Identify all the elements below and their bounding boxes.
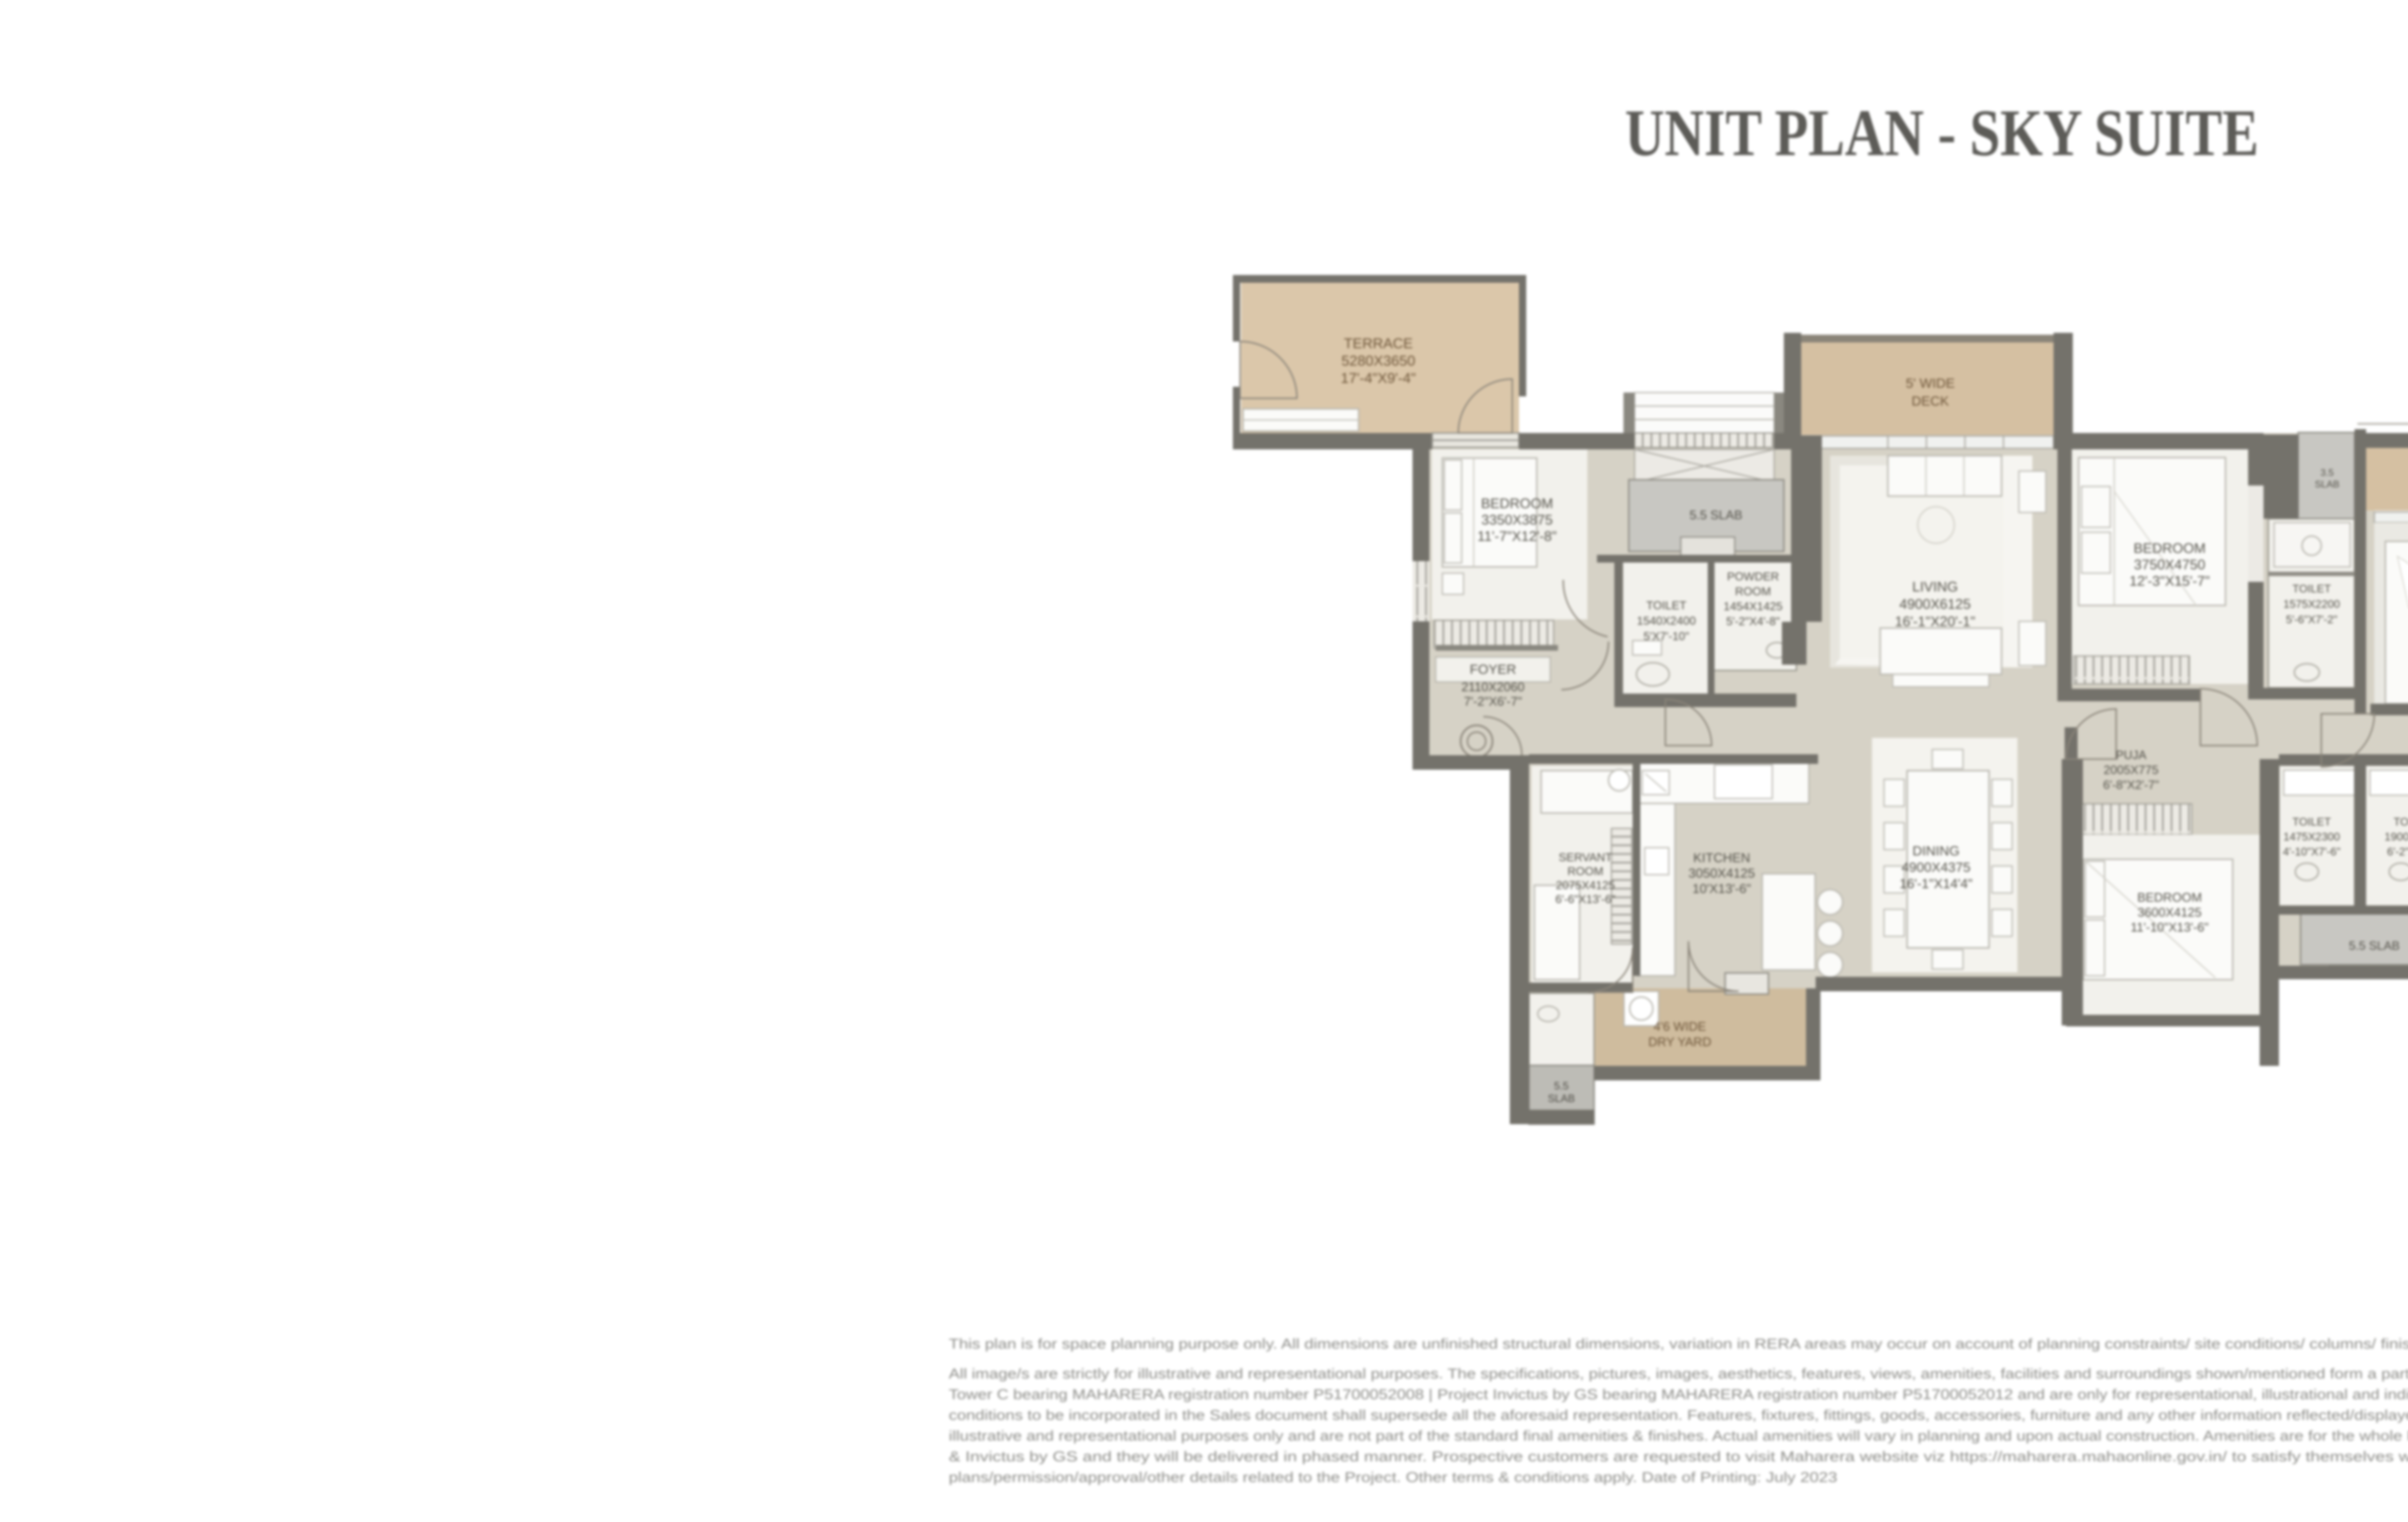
svg-text:& Invictus by GS and they will: & Invictus by GS and they will be delive… [949, 1449, 2408, 1465]
svg-text:UNIT PLAN - SKY SUITE: UNIT PLAN - SKY SUITE [1625, 96, 2259, 170]
svg-text:conditions to be incorporated: conditions to be incorporated in the Sal… [949, 1407, 2408, 1423]
svg-text:KITCHEN3050X412510'X13'-6": KITCHEN3050X412510'X13'-6" [1688, 851, 1755, 896]
svg-text:5.5 SLAB: 5.5 SLAB [2349, 939, 2400, 953]
svg-text:illustrative and representatio: illustrative and representational purpos… [949, 1428, 2408, 1444]
svg-text:5.5 SLAB: 5.5 SLAB [1689, 508, 1742, 522]
svg-text:FOYER: FOYER [1470, 662, 1516, 677]
svg-text:2110X20607'-2"X6'-7": 2110X20607'-2"X6'-7" [1461, 680, 1524, 709]
svg-text:TERRACE5280X365017'-4"X9'-4": TERRACE5280X365017'-4"X9'-4" [1341, 336, 1416, 386]
svg-text:BEDROOM3350X387511'-7"X12'-8": BEDROOM3350X387511'-7"X12'-8" [1478, 496, 1557, 544]
svg-text:Tower C bearing MAHARERA regis: Tower C bearing MAHARERA registration nu… [949, 1387, 2408, 1403]
svg-text:All image/s are strictly for i: All image/s are strictly for illustrativ… [949, 1366, 2408, 1382]
svg-text:This plan is for space plannin: This plan is for space planning purpose … [949, 1336, 2408, 1352]
svg-text:plans/permission/approval/othe: plans/permission/approval/other details … [949, 1470, 1837, 1485]
svg-text:BEDROOM3750X475012'-3"X15'-7": BEDROOM3750X475012'-3"X15'-7" [2129, 541, 2210, 589]
svg-text:BEDROOM3600X412511'-10"X13'-6": BEDROOM3600X412511'-10"X13'-6" [2131, 890, 2209, 934]
